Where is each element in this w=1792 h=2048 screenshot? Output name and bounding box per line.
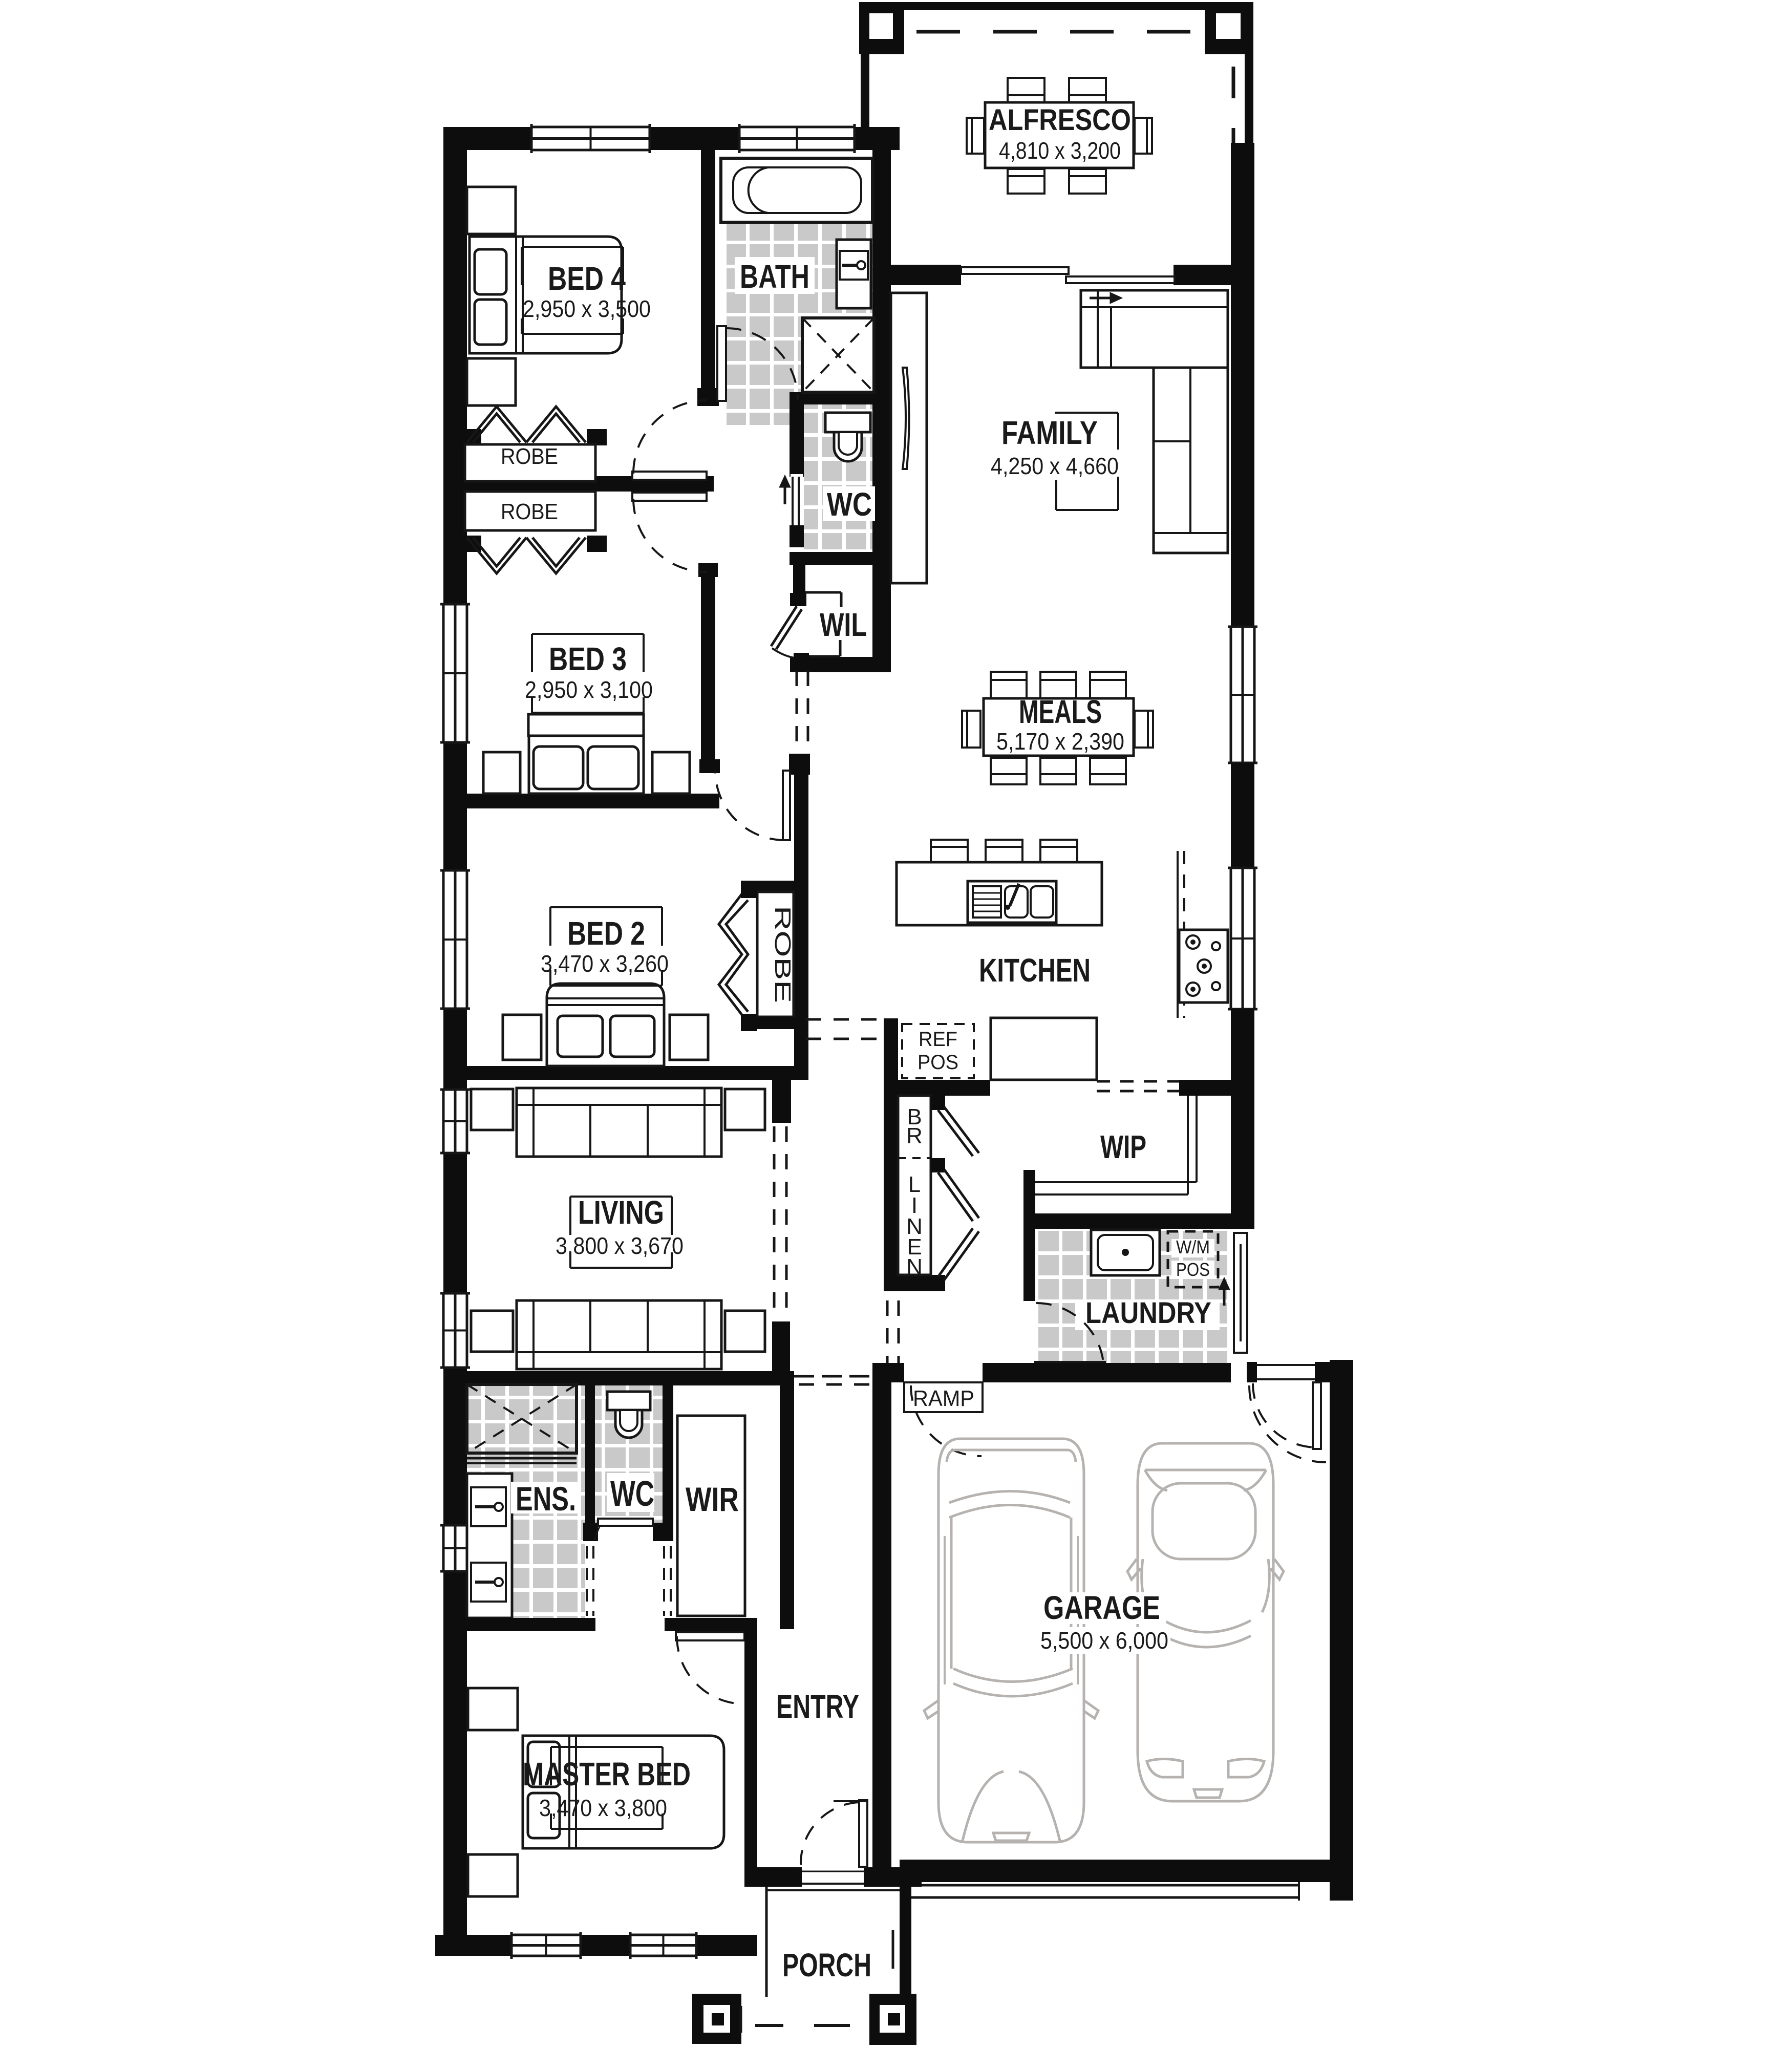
- svg-text:MASTER BED: MASTER BED: [523, 1756, 691, 1793]
- svg-text:BED 4: BED 4: [548, 260, 626, 297]
- svg-text:3,800 x 3,670: 3,800 x 3,670: [556, 1232, 684, 1259]
- svg-text:W/M: W/M: [1176, 1236, 1210, 1257]
- svg-text:ENS.: ENS.: [516, 1480, 576, 1518]
- svg-text:WIR: WIR: [686, 1480, 739, 1518]
- svg-text:ENTRY: ENTRY: [776, 1688, 859, 1725]
- svg-text:KITCHEN: KITCHEN: [979, 952, 1091, 989]
- svg-text:5,170 x 2,390: 5,170 x 2,390: [996, 728, 1124, 755]
- svg-text:REF: REF: [919, 1028, 957, 1051]
- svg-text:WIL: WIL: [820, 606, 867, 643]
- svg-text:WC: WC: [610, 1474, 654, 1513]
- svg-text:ROBE: ROBE: [501, 444, 558, 469]
- svg-text:GARAGE: GARAGE: [1043, 1589, 1160, 1626]
- svg-text:2,950 x 3,500: 2,950 x 3,500: [523, 295, 651, 322]
- svg-text:MEALS: MEALS: [1019, 693, 1102, 730]
- svg-text:BATH: BATH: [740, 258, 809, 295]
- svg-text:3,470 x 3,260: 3,470 x 3,260: [541, 950, 669, 977]
- svg-text:RAMP: RAMP: [913, 1386, 974, 1411]
- svg-text:POS: POS: [918, 1051, 958, 1074]
- svg-text:FAMILY: FAMILY: [1001, 414, 1098, 451]
- svg-text:WIP: WIP: [1100, 1128, 1146, 1165]
- svg-text:4,810 x 3,200: 4,810 x 3,200: [999, 137, 1121, 164]
- svg-text:3,470 x 3,800: 3,470 x 3,800: [539, 1795, 667, 1821]
- svg-text:ROBE: ROBE: [770, 906, 795, 1003]
- svg-text:POS: POS: [1176, 1259, 1210, 1280]
- svg-text:PORCH: PORCH: [782, 1947, 871, 1983]
- svg-text:BED 2: BED 2: [567, 915, 645, 952]
- svg-text:2,950 x 3,100: 2,950 x 3,100: [525, 676, 653, 703]
- svg-text:ROBE: ROBE: [501, 499, 558, 524]
- svg-text:LAUNDRY: LAUNDRY: [1085, 1296, 1211, 1330]
- svg-text:ALFRESCO: ALFRESCO: [989, 103, 1131, 137]
- svg-text:N: N: [906, 1254, 923, 1279]
- svg-text:BED 3: BED 3: [549, 641, 627, 677]
- svg-text:LIVING: LIVING: [578, 1194, 664, 1231]
- svg-text:5,500 x 6,000: 5,500 x 6,000: [1040, 1627, 1168, 1654]
- svg-text:R: R: [906, 1123, 923, 1148]
- svg-text:WC: WC: [827, 486, 872, 523]
- svg-text:4,250 x 4,660: 4,250 x 4,660: [991, 453, 1119, 479]
